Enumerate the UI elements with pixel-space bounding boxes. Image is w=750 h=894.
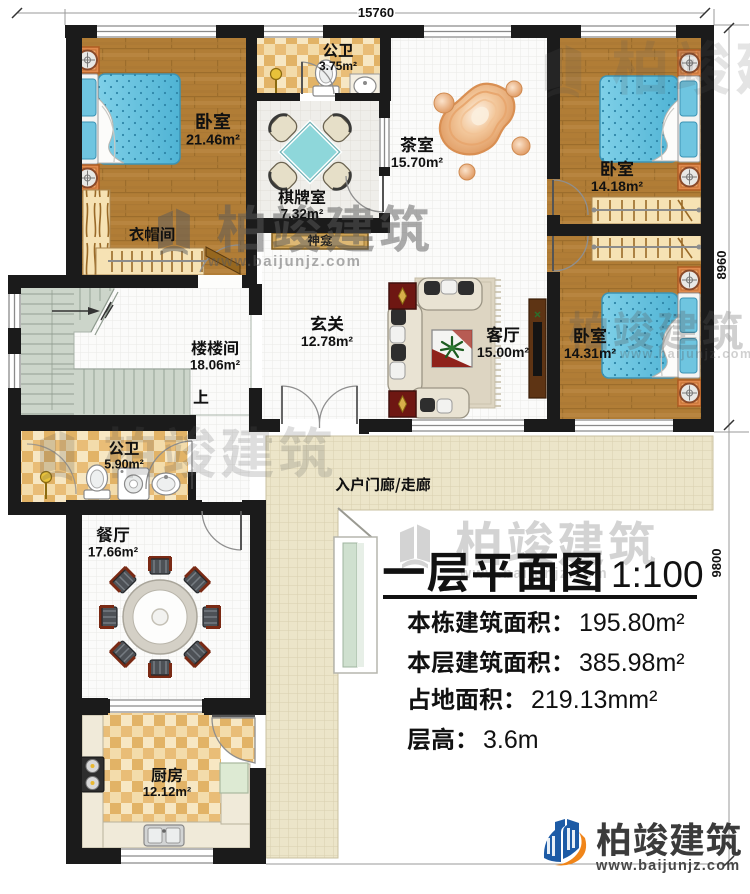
svg-text:195.80m²: 195.80m² — [579, 609, 685, 637]
svg-text:15760: 15760 — [358, 5, 394, 20]
svg-text:www.baijunjz.com: www.baijunjz.com — [595, 858, 740, 874]
svg-text:14.31m²: 14.31m² — [564, 345, 616, 361]
svg-text:21.46m²: 21.46m² — [186, 133, 240, 149]
svg-text:1:100: 1:100 — [611, 554, 704, 595]
svg-text:3.75m²: 3.75m² — [319, 59, 357, 73]
svg-text:12.78m²: 12.78m² — [301, 333, 353, 349]
svg-text:15.70m²: 15.70m² — [391, 154, 443, 170]
svg-text:3.6m: 3.6m — [483, 726, 539, 754]
svg-text:9800: 9800 — [709, 549, 724, 578]
svg-text:15.00m²: 15.00m² — [477, 344, 529, 360]
svg-text:www.baijunjz.com: www.baijunjz.com — [207, 253, 361, 270]
svg-text:12.12m²: 12.12m² — [143, 784, 192, 799]
svg-text:14.18m²: 14.18m² — [591, 178, 643, 194]
svg-text:www.baijunjz.com: www.baijunjz.com — [619, 347, 750, 361]
svg-text:17.66m²: 17.66m² — [88, 545, 139, 560]
svg-text:385.98m²: 385.98m² — [579, 649, 685, 677]
svg-text:5.90m²: 5.90m² — [104, 458, 144, 472]
svg-text:7.32m²: 7.32m² — [281, 207, 324, 222]
svg-text:18.06m²: 18.06m² — [190, 358, 241, 373]
svg-text:219.13mm²: 219.13mm² — [531, 686, 657, 714]
svg-text:8960: 8960 — [714, 251, 729, 280]
